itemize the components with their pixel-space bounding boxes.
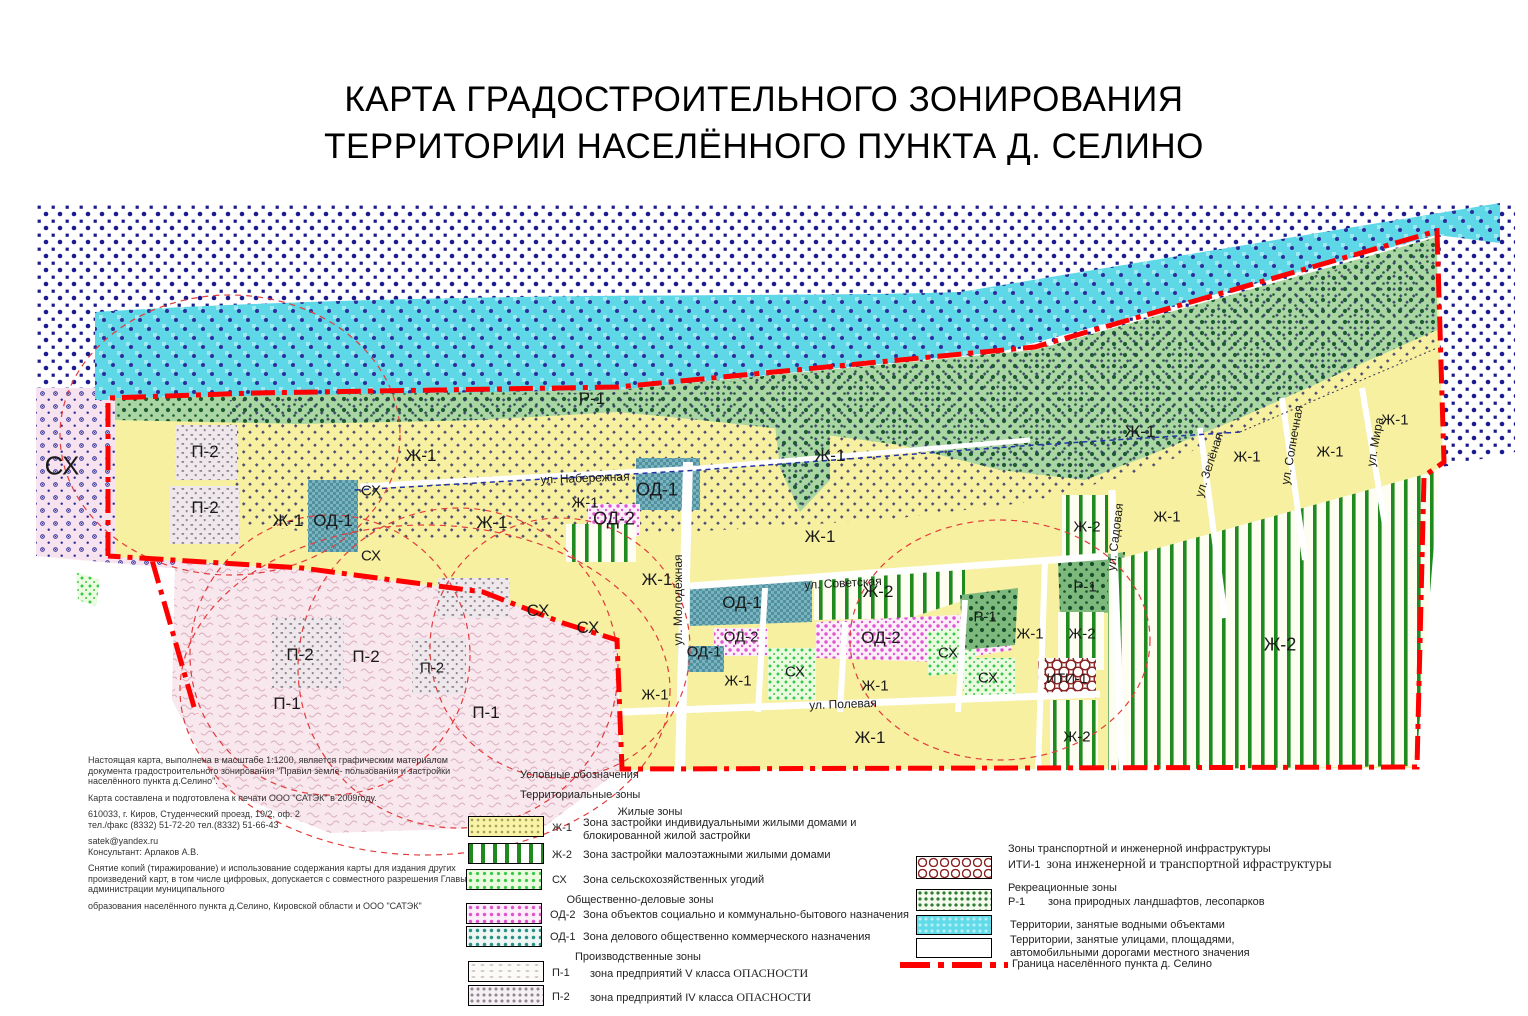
zoning-map-page: КАРТА ГРАДОСТРОИТЕЛЬНОГО ЗОНИРОВАНИЯ ТЕР… (0, 0, 1528, 1016)
zone-label: Р-1 (579, 389, 605, 409)
zone-label: П-2 (191, 442, 218, 462)
legend-code-zh1: Ж-1 (552, 822, 572, 834)
legend-swatch-water (916, 915, 992, 935)
legend-swatch-iti (916, 856, 992, 879)
zone-label: Ж-1 (642, 570, 673, 590)
legend-desc-p1: зона предприятий V класса ОПАСНОСТИ (590, 967, 808, 981)
legend-code-p1: П-1 (552, 967, 570, 979)
legend-desc-p2: зона предприятий IV класса ОПАСНОСТИ (590, 991, 811, 1005)
legend-code-p2: П-2 (552, 991, 570, 1003)
zone-label: Ж-1 (1233, 449, 1260, 466)
legend-swatch-boundary (900, 962, 1008, 968)
zone-label: Ж-1 (861, 678, 888, 695)
legend-swatch-od1 (466, 926, 542, 947)
legend-code-iti: ИТИ-1 (1008, 859, 1040, 871)
legend-header-recreation: Рекреационные зоны (1008, 882, 1117, 894)
zone-label: СХ (361, 548, 381, 565)
zone-label: ОД-1 (313, 511, 352, 531)
zone-label: СХ (938, 645, 958, 662)
legend-swatch-sx (466, 869, 542, 890)
zone-label: Ж-1 (477, 513, 508, 533)
zone-label: ОД-2 (724, 629, 759, 646)
legend-header-industrial: Производственные зоны (575, 951, 701, 963)
info-paragraph: Карта составлена и подготовлена к печати… (88, 793, 534, 804)
zone-label: ОД-2 (861, 628, 900, 648)
zone-label: Ж-2 (1063, 729, 1090, 746)
zone-label: П-2 (191, 498, 218, 518)
zone-label: Ж-1 (855, 728, 886, 748)
legend-desc-zh1: Зона застройки индивидуальными жилыми до… (583, 817, 903, 842)
legend-desc-r1: зона природных ландшафтов, лесопарков (1048, 896, 1265, 909)
legend-desc-p2-text: зона предприятий IV класса (590, 992, 733, 1004)
zone-zh2-a (566, 524, 636, 562)
legend-desc-p1-danger: ОПАСНОСТИ (733, 966, 808, 980)
zone-label: Ж-1 (273, 511, 304, 531)
legend-swatch-p1 (468, 961, 544, 982)
legend-code-zh2: Ж-2 (552, 849, 572, 861)
zone-label: СХ (785, 664, 805, 681)
zone-label: П-1 (472, 703, 499, 723)
zone-label: СХ (577, 618, 600, 638)
zone-label: Р-1 (973, 609, 996, 626)
legend-swatch-zh2 (468, 843, 544, 864)
zone-label: ОД-1 (636, 480, 678, 501)
zone-label: СХ (978, 670, 998, 687)
legend-title: Условные обозначения (520, 769, 639, 781)
zone-sx-corner (76, 572, 100, 606)
zone-label: Ж-1 (724, 673, 751, 690)
legend-swatch-streets (916, 938, 992, 958)
zone-label: Ж-2 (1068, 626, 1095, 643)
zone-label: Р-1 (1073, 579, 1096, 596)
legend-desc-p2-danger: ОПАСНОСТИ (736, 990, 811, 1004)
zone-label: Ж-1 (1016, 626, 1043, 643)
zone-label: П-2 (420, 660, 444, 677)
info-paragraph: Снятие копий (тиражирование) и использов… (88, 863, 508, 895)
legend-code-od2: ОД-2 (550, 909, 576, 921)
street-label-polevaya: ул. Полевая (809, 696, 877, 712)
legend-swatch-r1 (916, 889, 992, 911)
street-label-molodezhnaya: ул. Молодёжная (671, 555, 685, 646)
zone-label: Ж-1 (1153, 509, 1180, 526)
legend-desc-iti: зона инженерной и транспортной ифраструк… (1046, 856, 1331, 871)
zone-label: П-2 (286, 645, 313, 665)
legend-row-iti: ИТИ-1 зона инженерной и транспортной ифр… (1008, 858, 1332, 872)
legend-swatch-p2 (468, 985, 544, 1006)
legend-code-sx: СХ (552, 874, 567, 886)
zone-label: Ж-1 (641, 687, 668, 704)
zone-label: Ж-1 (1125, 422, 1156, 442)
zone-label: ОД-2 (593, 509, 635, 530)
zone-label: Ж-1 (1316, 444, 1343, 461)
legend-swatch-od2 (466, 903, 542, 924)
zone-label: СХ (361, 483, 381, 500)
legend-code-r1: Р-1 (1008, 896, 1025, 908)
zone-label: СХ (527, 601, 550, 621)
zone-label: Ж-1 (815, 446, 846, 466)
zone-label: СХ (45, 451, 80, 482)
legend-header-transport: Зоны транспортной и инженерной инфрастру… (1008, 843, 1271, 855)
zone-label: ОД-1 (722, 593, 761, 613)
legend-subtitle: Территориальные зоны (520, 789, 640, 801)
zone-label: ОД-1 (687, 644, 722, 661)
zone-label: П-2 (352, 647, 379, 667)
legend-desc-sx: Зона сельскохозяйственных угодий (583, 874, 943, 887)
legend-header-business: Общественно-деловые зоны (520, 894, 760, 906)
info-paragraph: образования населённого пункта д.Селино,… (88, 901, 488, 912)
zone-label: Ж-1 (805, 527, 836, 547)
zone-label: Ж-1 (406, 446, 437, 466)
legend-desc-streets: Территории, занятые улицами, площадями, … (1010, 934, 1300, 959)
zone-label: ИТИ-1 (1046, 670, 1087, 686)
legend-code-od1: ОД-1 (550, 931, 576, 943)
zone-label: П-1 (273, 694, 300, 714)
legend-swatch-zh1 (468, 816, 544, 837)
info-paragraph: Настоящая карта, выполнена в масштабе 1:… (88, 755, 488, 787)
legend-desc-p1-text: зона предприятий V класса (590, 968, 730, 980)
legend-desc-zh2: Зона застройки малоэтажными жилыми домам… (583, 849, 943, 862)
legend-desc-water: Территории, занятые водными объектами (1010, 919, 1225, 932)
zone-label: Ж-2 (1264, 635, 1297, 656)
legend-desc-boundary: Граница населённого пункта д. Селино (1012, 958, 1212, 971)
zone-label: Ж-2 (1073, 519, 1100, 536)
